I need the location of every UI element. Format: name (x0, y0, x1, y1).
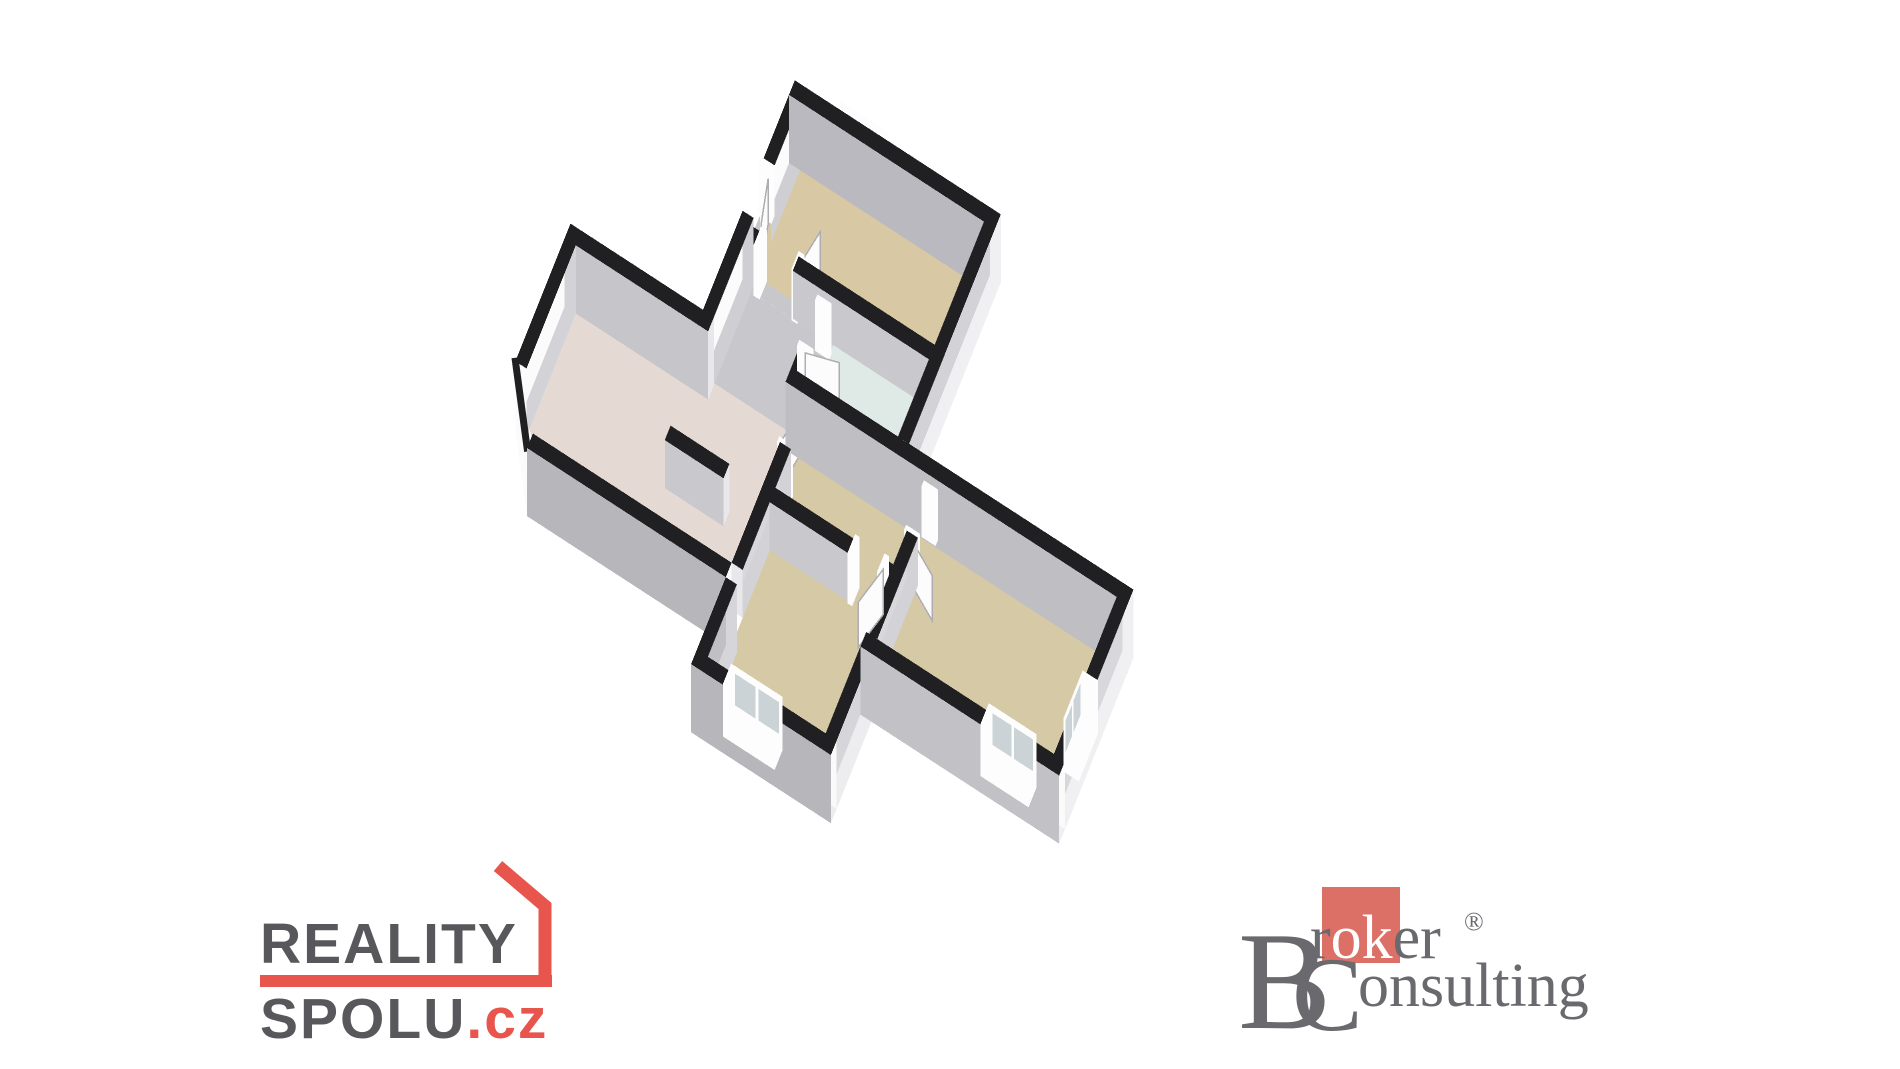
wall-door-frame-east (771, 165, 774, 224)
broker-word-onsulting: onsulting (1358, 952, 1589, 1020)
page: REALITY SPOLU.cz B roker ® C onsulting (0, 0, 1900, 1069)
broker-registered-icon: ® (1464, 907, 1484, 936)
reality-logo-spolu: SPOLU (260, 987, 466, 1051)
wall-door-frame-east (936, 489, 938, 546)
wall-door-frame-south (848, 553, 852, 607)
wall-main-north-w-east (708, 317, 714, 400)
wall-door-frame-south (922, 486, 936, 546)
reality-logo-line2: SPOLU.cz (260, 987, 548, 1051)
reality-spolu-logo: REALITY SPOLU.cz (230, 840, 650, 1069)
broker-consulting-logo: B roker ® C onsulting (1180, 860, 1700, 1065)
floors (527, 150, 1117, 802)
wall-door-frame-south (815, 300, 829, 360)
reality-logo-line1: REALITY (260, 912, 518, 976)
wall-door-frame-east (829, 303, 831, 360)
wall-door-frame-south (754, 245, 760, 300)
broker-initial-c: C (1292, 936, 1363, 1053)
reality-underline (260, 975, 552, 987)
reality-logo-cz: .cz (466, 987, 548, 1051)
